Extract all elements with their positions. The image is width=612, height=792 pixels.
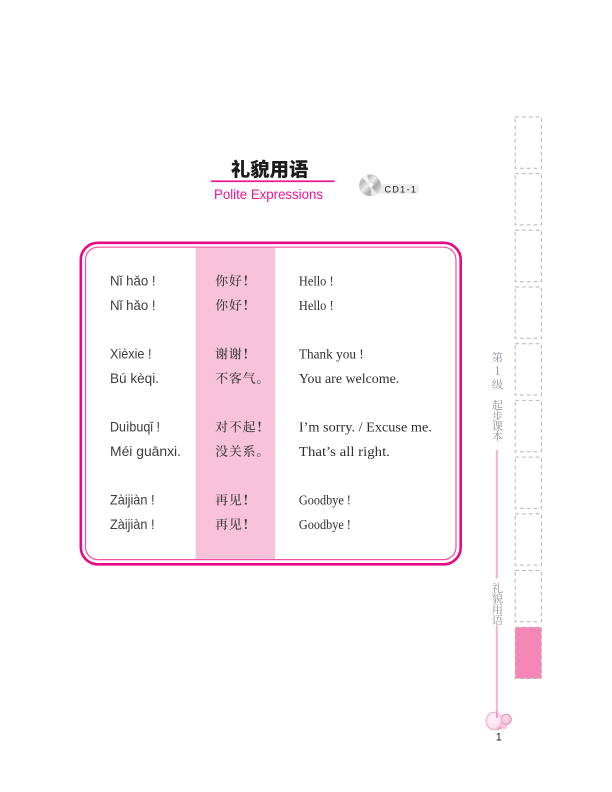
svg-text:Zàijiàn !: Zàijiàn ! [110,516,155,532]
svg-text:Goodbye !: Goodbye ! [299,517,351,532]
svg-text:You are welcome.: You are welcome. [299,371,399,386]
svg-text:CD1-1: CD1-1 [384,184,416,194]
svg-text:Xièxie !: Xièxie ! [110,345,152,361]
svg-text:Nǐ hǎo !: Nǐ hǎo ! [110,297,156,313]
svg-text:Hello !: Hello ! [299,298,334,313]
svg-text:Polite Expressions: Polite Expressions [214,186,323,202]
svg-text:Hello !: Hello ! [299,273,334,288]
svg-text:Thank you !: Thank you ! [299,346,364,361]
svg-text:Méi guānxi.: Méi guānxi. [110,443,181,459]
svg-text:Goodbye !: Goodbye ! [299,493,351,508]
svg-text:Bú kèqi.: Bú kèqi. [110,370,159,386]
svg-text:1: 1 [496,731,502,743]
svg-text:That’s all right.: That’s all right. [299,444,390,459]
svg-text:Zàijiàn !: Zàijiàn ! [110,492,155,508]
svg-text:Duìbuqǐ !: Duìbuqǐ ! [110,419,160,435]
svg-text:I’m sorry. / Excuse me.: I’m sorry. / Excuse me. [299,420,432,435]
svg-text:Nǐ hǎo !: Nǐ hǎo ! [110,272,156,288]
